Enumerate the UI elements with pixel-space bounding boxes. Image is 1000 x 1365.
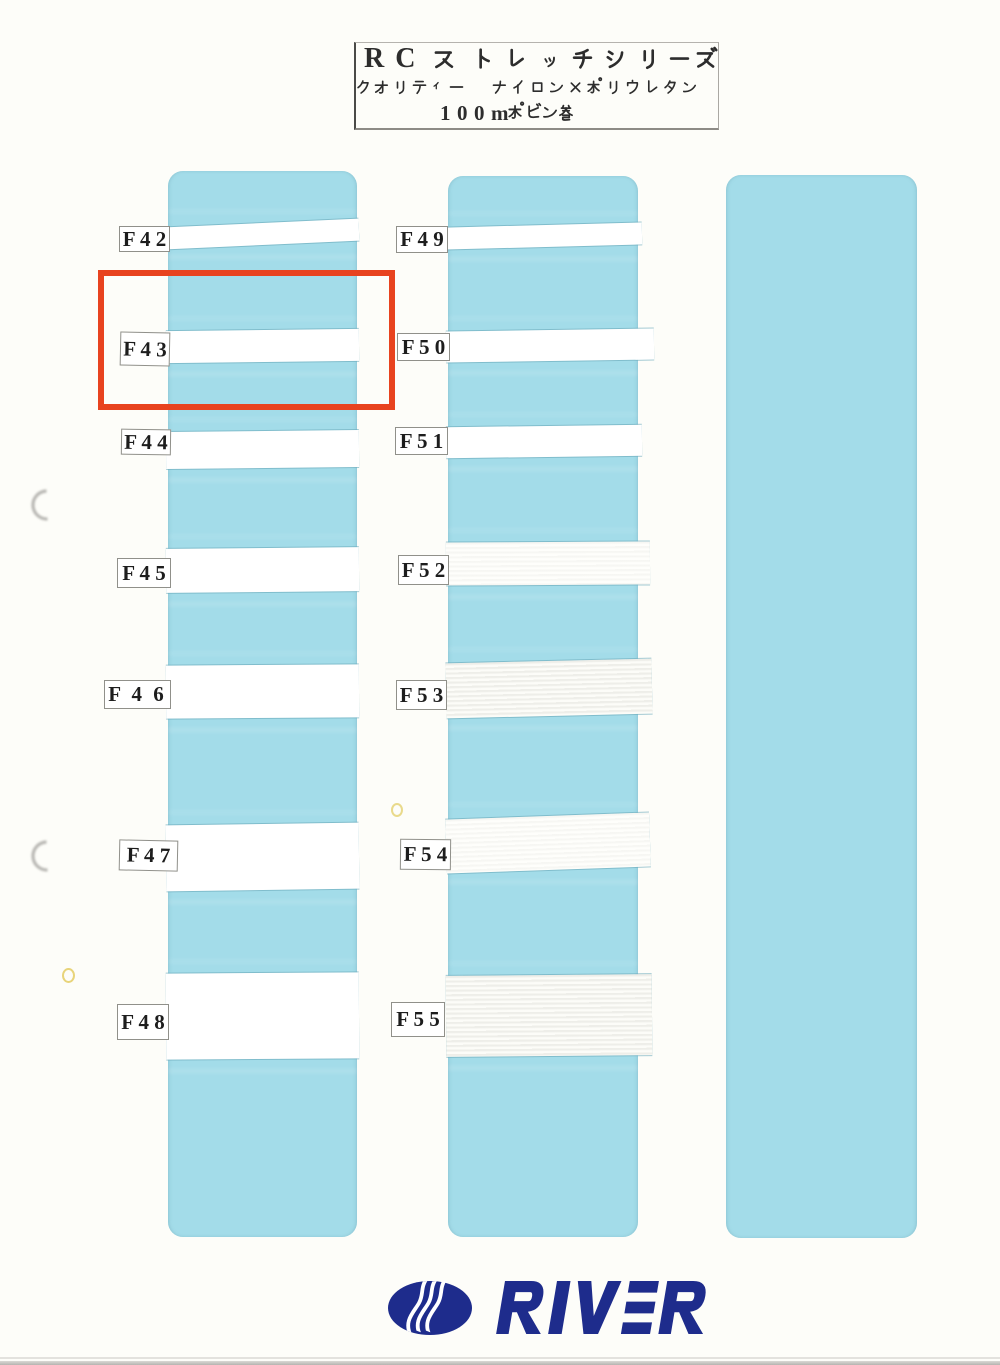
svg-text:100m: 100m bbox=[440, 101, 515, 125]
svg-text:RC: RC bbox=[364, 43, 426, 74]
